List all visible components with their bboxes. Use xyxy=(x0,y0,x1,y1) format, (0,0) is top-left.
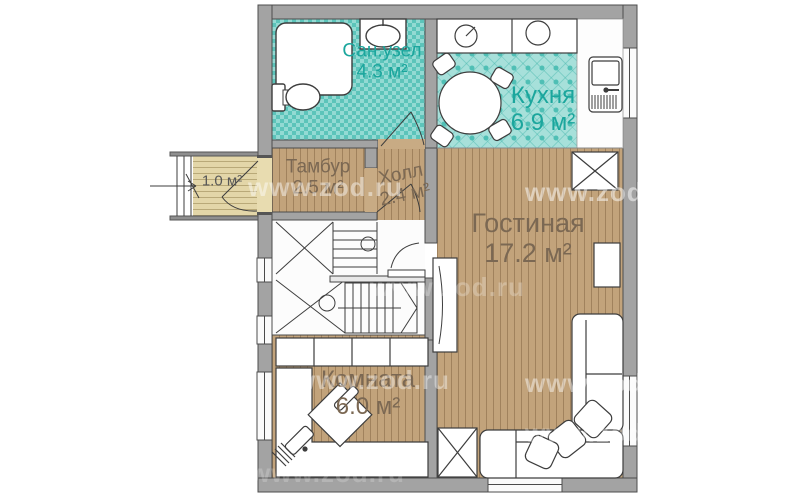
room-name: Тамбур xyxy=(286,157,351,178)
room-area: 4.3 м² xyxy=(342,62,421,83)
window-icon xyxy=(488,477,562,492)
room-name: Гостиная xyxy=(471,208,584,238)
room-area: 17.2 м² xyxy=(471,238,584,268)
wall-bottom xyxy=(258,478,637,492)
window-icon xyxy=(257,372,272,440)
room-name: Комната xyxy=(321,367,415,394)
room-name: Кухня xyxy=(511,83,576,110)
kitchen-label: Кухня 6.9 м² xyxy=(511,83,576,137)
wall-vestibule-hall xyxy=(365,148,377,168)
porch-label: 1.0 м² xyxy=(202,174,242,191)
vestibule-label: Тамбур 2.5 м² xyxy=(286,157,351,200)
wardrobe-icon xyxy=(438,428,477,477)
door-arc-icon xyxy=(388,243,425,277)
toilet-icon xyxy=(272,84,320,111)
staircase-icon xyxy=(272,222,425,335)
window-icon xyxy=(622,376,637,446)
door-arc-icon xyxy=(378,112,425,149)
wall-bath-vestibule xyxy=(272,140,378,148)
room-area: 2.5 м² xyxy=(286,178,351,199)
bathroom-label: Сан.узел 4.3 м² xyxy=(342,41,421,84)
window-icon xyxy=(257,258,272,282)
dining-set xyxy=(429,52,514,149)
shower-icon xyxy=(276,23,352,95)
living-label: Гостиная 17.2 м² xyxy=(471,208,584,268)
wall-top xyxy=(258,5,637,19)
sofa-icon xyxy=(480,314,623,478)
kitchen-sink-icon xyxy=(589,57,622,112)
floor-plan: Сан.узел 4.3 м² Кухня 6.9 м² Тамбур 2.5 … xyxy=(0,0,795,496)
room-area: 1.0 м² xyxy=(202,174,242,191)
closet-icon xyxy=(276,338,428,366)
wall-vestibule-stairs xyxy=(272,212,377,220)
room-area: 6.0 м² xyxy=(321,394,415,421)
room-name: Сан.узел xyxy=(342,41,421,62)
living-furniture xyxy=(433,152,623,478)
dining-table-icon xyxy=(439,72,501,134)
wardrobe-icon xyxy=(572,152,618,190)
bedroom-label: Комната 6.0 м² xyxy=(321,367,415,421)
window-icon xyxy=(622,48,637,118)
room-area: 6.9 м² xyxy=(511,110,576,137)
stove-icon xyxy=(455,25,477,47)
sink-icon xyxy=(526,21,550,45)
radiator-icon xyxy=(594,243,620,287)
tv-cabinet-icon xyxy=(433,258,457,352)
window-icon xyxy=(257,316,272,344)
